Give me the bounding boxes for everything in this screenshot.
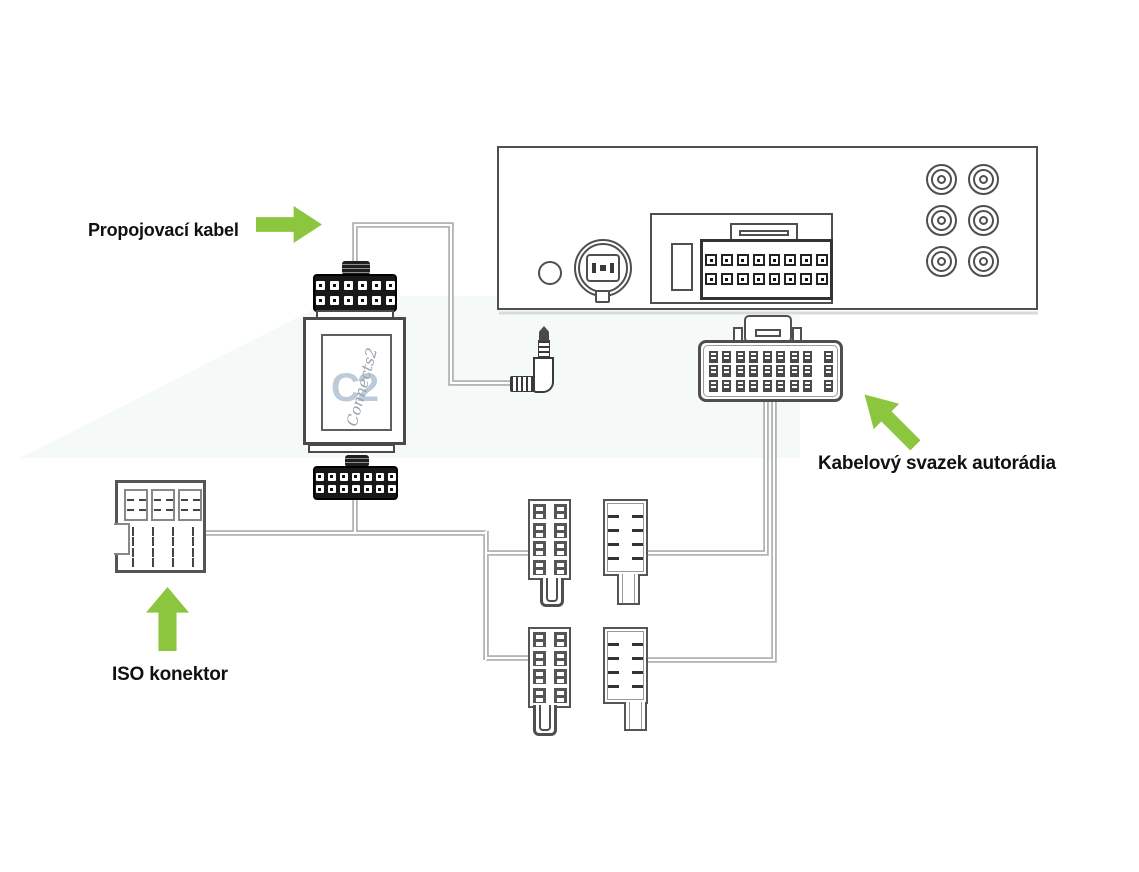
wiring-diagram: Propojovací kabel Kabelový svazek autorá… [0,0,1139,872]
iso-connector [115,480,206,573]
background-watermark [20,296,800,458]
adapter-top-strain-relief [342,261,370,275]
label-radio-harness: Kabelový svazek autorádia [818,453,1056,475]
iso-block-2 [151,489,175,521]
antenna-center-pin [600,265,606,271]
jack-shaft [538,340,550,359]
keyed-plug-lower-key [624,702,647,731]
antenna-pin [610,263,614,273]
iso-pin-field [132,527,194,567]
label-connecting-cable: Propojovací kabel [88,220,239,241]
radio-socket-slot [739,230,789,236]
iso-block-3 [178,489,202,521]
keyed-plug-lower-pins [607,631,644,700]
radio-rear-panel [497,146,1038,310]
antenna-socket [574,239,632,297]
keyed-plug-lower [603,627,648,704]
antenna-socket-key [595,290,610,303]
adapter-interface-box: C2 Connects2 [303,317,406,445]
iso-block-1 [124,489,148,521]
terminal-plug-lower-latch [533,705,557,736]
socket-slot [671,243,693,291]
screw-hole [538,261,562,285]
harness-terminals [703,345,838,397]
antenna-pin [592,263,596,273]
harness-connector [698,340,843,402]
adapter-logo-frame: C2 Connects2 [321,334,392,431]
jack-body [533,357,554,393]
rca-jack-grid [926,164,999,277]
harness-latch-slot [755,329,781,337]
wire-layer [0,0,1139,872]
keyed-plug-upper [603,499,648,576]
terminal-plug-lower [528,627,571,708]
harness-latch-tab [744,315,792,343]
iso-key-notch [114,523,130,555]
keyed-plug-upper-pins [607,503,644,572]
terminal-plug-upper [528,499,571,580]
terminal-plug-upper-latch [540,578,564,607]
radio-socket-pins [700,239,833,300]
adapter-top-plug [313,274,397,312]
adapter-bottom-rail [308,444,395,453]
label-iso-connector: ISO konektor [112,664,228,686]
adapter-bottom-plug [313,466,398,500]
keyed-plug-upper-key [617,574,640,605]
